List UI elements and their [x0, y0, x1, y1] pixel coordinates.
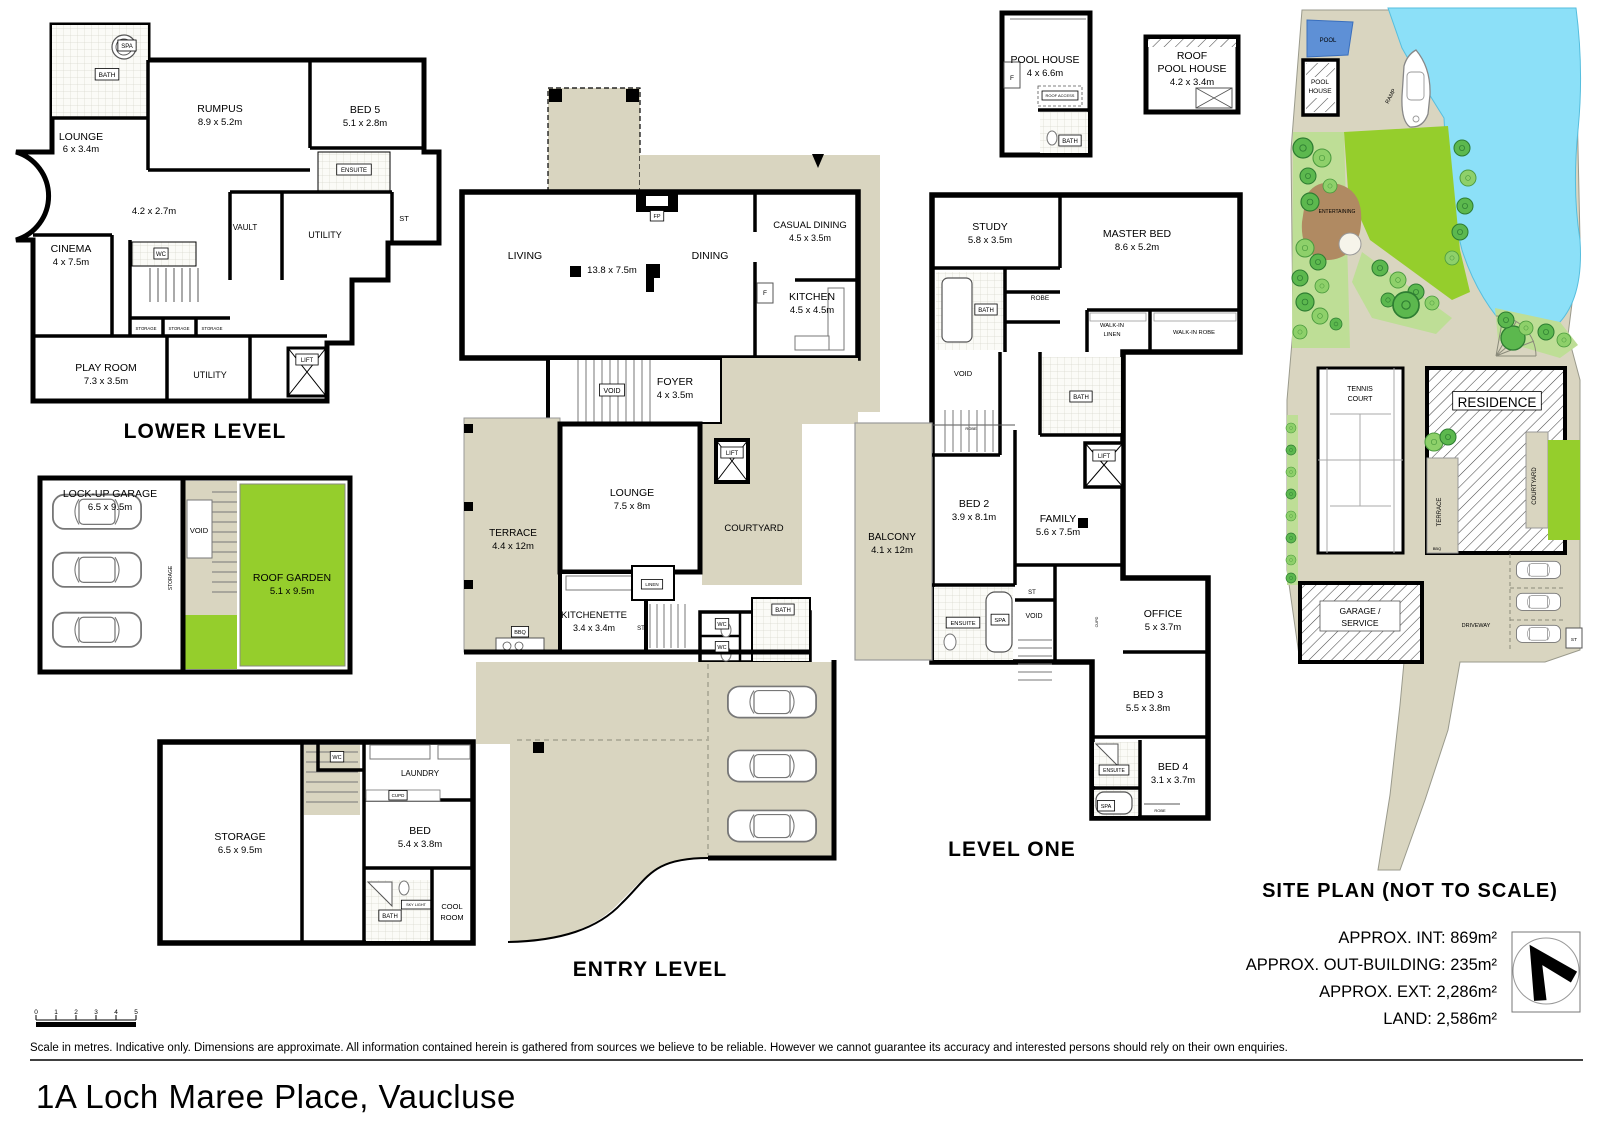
site-trees-part — [1312, 308, 1328, 324]
label-spa: SPA — [994, 618, 1005, 624]
label-4-2-x-2-7m: 4.2 x 2.7m — [132, 206, 176, 217]
level-one-plan-part — [1047, 131, 1057, 145]
label-pool: POOL — [1311, 79, 1329, 86]
entry-level-plan-part — [464, 424, 473, 433]
label-4-x-3-5m: 4 x 3.5m — [657, 390, 694, 401]
label-4: 4 — [114, 1009, 118, 1016]
label-8-6-x-5-2m: 8.6 x 5.2m — [1115, 242, 1159, 253]
site-trees-part — [1286, 423, 1296, 433]
label-4-4-x-12m: 4.4 x 12m — [492, 541, 534, 552]
label-2: 2 — [74, 1009, 78, 1016]
lower-level-title: LOWER LEVEL — [124, 420, 287, 443]
label-4-x-7-5m: 4 x 7.5m — [53, 257, 90, 268]
label-robe: ROBE — [1154, 808, 1166, 813]
label-pool-house: POOL HOUSE — [1010, 54, 1079, 66]
label-st: ST — [399, 214, 409, 223]
label-void: VOID — [1025, 613, 1042, 620]
label-casual-dining: CASUAL DINING — [773, 220, 847, 231]
site-trees-part — [1286, 573, 1296, 583]
laundry-counter — [370, 745, 430, 759]
label-robe: ROBE — [965, 426, 977, 431]
site-trees-part — [1293, 325, 1307, 339]
label-cinema: CINEMA — [51, 243, 92, 255]
label-storage: STORAGE — [214, 831, 265, 843]
label-bbq: BBQ — [1433, 546, 1441, 551]
l1-tub — [942, 278, 972, 342]
label-roof-access: ROOF ACCESS — [1046, 93, 1075, 98]
site-trees-part — [1330, 318, 1342, 330]
site-trees-part — [1300, 168, 1316, 184]
label-rumpus: RUMPUS — [197, 103, 243, 115]
label-residence: RESIDENCE — [1458, 395, 1537, 410]
site-plan-part — [1440, 429, 1456, 445]
label-pool-house: POOL HOUSE — [1157, 63, 1226, 75]
site-trees-part — [1454, 140, 1470, 156]
label-wc: WC — [156, 252, 167, 258]
label-void: VOID — [190, 526, 209, 535]
floorplan-canvas: SPABATHLOUNGE6 x 3.4mRUMPUS8.9 x 5.2mBED… — [0, 0, 1600, 1123]
scale-bar-ticks: 012345 — [34, 1009, 138, 1016]
stat-land: LAND: 2,586m² — [1383, 1010, 1497, 1028]
foyer — [548, 358, 722, 424]
label-ensuite: ENSUITE — [341, 168, 367, 174]
site-trees-part — [1445, 251, 1459, 265]
page-title: 1A Loch Maree Place, Vaucluse — [36, 1078, 516, 1115]
label-5-4-x-3-8m: 5.4 x 3.8m — [398, 839, 442, 850]
entry-level-plan-part — [728, 686, 816, 717]
site-plan-part — [1516, 561, 1560, 578]
label-tennis: TENNIS — [1347, 386, 1373, 393]
label-entertaining: ENTERTAINING — [1319, 209, 1356, 215]
entry-level-plan-part — [728, 810, 816, 841]
label-roof: ROOF — [1177, 50, 1207, 62]
label-3-9-x-8-1m: 3.9 x 8.1m — [952, 512, 996, 523]
label-5-6-x-7-5m: 5.6 x 7.5m — [1036, 527, 1080, 538]
garage-plan-part — [53, 613, 141, 647]
label-4-x-6-6m: 4 x 6.6m — [1027, 68, 1064, 79]
site-plan-part — [1306, 98, 1335, 112]
label-cupd: CUPD — [392, 793, 406, 798]
label-living: LIVING — [508, 250, 542, 262]
kitchen-bench — [795, 336, 829, 350]
entry-level-plan-part — [646, 196, 668, 206]
label-lift: LIFT — [726, 451, 739, 457]
label-4-5-x-3-5m: 4.5 x 3.5m — [789, 233, 831, 243]
label-1: 1 — [54, 1009, 58, 1016]
label-bath: BATH — [1073, 395, 1089, 401]
entry-level-plan-part — [464, 502, 473, 511]
site-trees-part — [1286, 489, 1296, 499]
site-trees-part — [1296, 293, 1314, 311]
label-cupd: CUPD — [1095, 616, 1099, 627]
site-trees-part — [1286, 445, 1296, 455]
site-trees-part — [1310, 254, 1326, 270]
label-st: ST — [637, 626, 645, 632]
site-trees-part — [1452, 224, 1468, 240]
label-bath: BATH — [978, 308, 994, 314]
label-bath: BATH — [775, 608, 791, 614]
stat-ext: APPROX. EXT: 2,286m² — [1319, 983, 1497, 1001]
label-5-1-x-2-8m: 5.1 x 2.8m — [343, 118, 387, 129]
site-plan: POOLPOOLHOUSERAMPENTERTAININGTENNISCOURT… — [1246, 8, 1582, 1028]
label-wc: WC — [717, 622, 726, 628]
site-trees-part — [1313, 149, 1331, 167]
label-family: FAMILY — [1040, 513, 1077, 525]
label-linen: LINEN — [645, 582, 658, 587]
label-courtyard: COURTYARD — [724, 523, 783, 534]
label-walk-in-robe: WALK-IN ROBE — [1173, 330, 1215, 336]
label-pool: POOL — [1320, 38, 1337, 44]
site-trees-part — [1315, 279, 1329, 293]
site-trees-part — [1498, 312, 1514, 328]
label-8-9-x-5-2m: 8.9 x 5.2m — [198, 117, 242, 128]
label-kitchen: KITCHEN — [789, 291, 835, 303]
label-walk-in: WALK-IN — [1100, 323, 1124, 329]
label-void: VOID — [954, 369, 973, 378]
label-bed-3: BED 3 — [1133, 689, 1164, 701]
label-4-2-x-3-4m: 4.2 x 3.4m — [1170, 77, 1214, 88]
label-utility: UTILITY — [193, 370, 227, 380]
label-office: OFFICE — [1144, 608, 1183, 620]
site-trees-part — [1296, 239, 1314, 257]
site-trees-part — [1372, 260, 1388, 276]
label-lift: LIFT — [301, 358, 314, 364]
site-trees-part — [1286, 511, 1296, 521]
label-3: 3 — [94, 1009, 98, 1016]
label-7-3-x-3-5m: 7.3 x 3.5m — [84, 376, 128, 387]
label-laundry: LAUNDRY — [401, 769, 440, 778]
label-driveway: DRIVEWAY — [1462, 623, 1491, 629]
label-house: HOUSE — [1308, 88, 1332, 95]
label-bbq: BBQ — [514, 630, 526, 636]
site-trees-part — [1393, 292, 1419, 318]
level-one-plan-part — [944, 634, 956, 650]
label-13-8-x-7-5m: 13.8 x 7.5m — [587, 265, 637, 276]
compass — [1508, 931, 1582, 1012]
entry-top-terrace — [548, 88, 640, 192]
label-0: 0 — [34, 1009, 38, 1016]
label-5-8-x-3-5m: 5.8 x 3.5m — [968, 235, 1012, 246]
site-trees-part — [1301, 193, 1319, 211]
label-spa: SPA — [1101, 804, 1112, 810]
disclaimer-text: Scale in metres. Indicative only. Dimens… — [30, 1042, 1288, 1054]
label-5-x-3-7m: 5 x 3.7m — [1145, 622, 1182, 633]
label-7-5-x-8m: 7.5 x 8m — [614, 501, 651, 512]
entry-level-plan-part — [626, 89, 639, 102]
walkin-shelf2 — [1154, 313, 1236, 321]
entry-stairs2 — [650, 604, 685, 648]
label-f: F — [763, 290, 767, 297]
lower-level-plan: SPABATHLOUNGE6 x 3.4mRUMPUS8.9 x 5.2mBED… — [16, 25, 439, 443]
label-wc: WC — [717, 645, 726, 651]
site-trees-part — [1286, 555, 1296, 565]
label-court: COURT — [1348, 396, 1373, 403]
label-6-x-3-4m: 6 x 3.4m — [63, 144, 100, 155]
pool-house-bath-tiles — [1040, 112, 1088, 153]
label-4-5-x-4-5m: 4.5 x 4.5m — [790, 305, 834, 316]
label-terrace: TERRACE — [1437, 498, 1443, 527]
label-robe: ROBE — [1031, 295, 1050, 302]
site-trees-part — [1519, 321, 1533, 335]
label-st: ST — [1028, 590, 1036, 596]
entry-level-plan-part — [728, 750, 816, 781]
label-lounge: LOUNGE — [59, 131, 103, 143]
label-ensuite: ENSUITE — [1103, 768, 1125, 774]
label-f: F — [1010, 75, 1014, 82]
label-roof-garden: ROOF GARDEN — [253, 572, 331, 584]
label-lounge: LOUNGE — [610, 487, 654, 499]
label-sky-light: SKY LIGHT — [406, 903, 426, 907]
label-study: STUDY — [972, 221, 1008, 233]
label-foyer: FOYER — [657, 376, 694, 388]
label-bath: BATH — [382, 914, 398, 920]
label-bed-4: BED 4 — [1158, 761, 1189, 773]
label-linen: LINEN — [1103, 332, 1120, 338]
label-cool: COOL — [441, 902, 462, 911]
label-vault: VAULT — [233, 223, 258, 232]
level-one-plan-part — [1148, 39, 1236, 47]
label-courtyard: COURTYARD — [1532, 467, 1538, 505]
entry-level-plan-part — [533, 742, 544, 753]
garage-plan: LOCK-UP GARAGE6.5 x 9.5mVOIDSTORAGEROOF … — [40, 478, 350, 672]
label-kitchenette: KITCHENETTE — [561, 610, 627, 621]
footer: 012345 Scale in metres. Indicative only.… — [30, 1009, 1583, 1115]
site-trees-part — [1323, 179, 1337, 193]
label-master-bed: MASTER BED — [1103, 228, 1172, 240]
garage-plan-part — [53, 553, 141, 587]
site-trees-part — [1286, 467, 1296, 477]
site-trees-part — [1425, 296, 1439, 310]
label-4-1-x-12m: 4.1 x 12m — [871, 545, 913, 556]
label-6-5-x-9-5m: 6.5 x 9.5m — [88, 502, 132, 513]
site-trees-part — [1286, 533, 1296, 543]
label-ensuite: ENSUITE — [950, 621, 975, 627]
label-spa: SPA — [121, 44, 133, 50]
entry-level-plan-part — [438, 745, 470, 759]
stat-int: APPROX. INT: 869m² — [1338, 929, 1497, 947]
label-wc: WC — [332, 755, 341, 761]
label-bed-2: BED 2 — [959, 498, 990, 510]
site-plan-part — [1516, 593, 1560, 610]
label-room: ROOM — [440, 913, 463, 922]
floorplan-page: SPABATHLOUNGE6 x 3.4mRUMPUS8.9 x 5.2mBED… — [0, 0, 1600, 1123]
site-plan-part — [1516, 625, 1560, 642]
label-dining: DINING — [692, 250, 729, 262]
label-lock-up-garage: LOCK-UP GARAGE — [63, 488, 157, 500]
label-6-5-x-9-5m: 6.5 x 9.5m — [218, 845, 262, 856]
site-trees-part — [1390, 272, 1406, 288]
label-utility: UTILITY — [308, 230, 342, 240]
label-lift: LIFT — [1098, 454, 1111, 460]
garden-strip — [185, 615, 237, 669]
site-trees-part — [1293, 138, 1313, 158]
site-plan-title: SITE PLAN (NOT TO SCALE) — [1262, 880, 1558, 902]
site-trees-part — [1538, 324, 1554, 340]
site-trees-part — [1460, 170, 1476, 186]
entry-level-plan-part — [399, 881, 409, 895]
scale-bar — [36, 1022, 136, 1027]
label-3-4-x-3-4m: 3.4 x 3.4m — [573, 623, 615, 633]
walkin-shelf1 — [1090, 313, 1146, 321]
label-fp: FP — [653, 214, 660, 220]
entry-level-title: ENTRY LEVEL — [573, 958, 728, 981]
stat-outbuilding: APPROX. OUT-BUILDING: 235m² — [1246, 956, 1498, 974]
label-terrace: TERRACE — [489, 528, 537, 539]
kitchenette-counter — [566, 576, 638, 590]
label-storage: STORAGE — [136, 326, 157, 331]
entry-level-plan-part — [646, 278, 654, 292]
label-5-5-x-3-8m: 5.5 x 3.8m — [1126, 703, 1170, 714]
label-bed: BED — [409, 825, 431, 837]
level-one-title: LEVEL ONE — [948, 838, 1076, 861]
entry-level-plan-part — [570, 266, 581, 277]
scale-bar-ruler — [36, 1015, 136, 1020]
entry-level-plan-part — [646, 264, 660, 278]
site-trees-part — [1292, 270, 1308, 286]
label-bath: BATH — [99, 72, 116, 79]
paver-circle — [1339, 233, 1361, 255]
label-bath: BATH — [1062, 139, 1078, 145]
label-st: ST — [1571, 637, 1577, 643]
foyer-walkway — [722, 358, 858, 424]
label-5: 5 — [134, 1009, 138, 1016]
entry-level-plan-part — [464, 580, 473, 589]
site-trees-part — [1557, 333, 1571, 347]
label-garage-: GARAGE / — [1339, 606, 1381, 616]
label-storage: STORAGE — [169, 326, 190, 331]
label-5-1-x-9-5m: 5.1 x 9.5m — [270, 586, 314, 597]
entry-level-plan-part — [549, 89, 562, 102]
label-play-room: PLAY ROOM — [75, 362, 136, 374]
label-bed-5: BED 5 — [350, 104, 381, 116]
label-3-1-x-3-7m: 3.1 x 3.7m — [1151, 775, 1195, 786]
level-one-plan: POOL HOUSE4 x 6.6mFROOF ACCESSBATHROOFPO… — [855, 13, 1240, 861]
residence-lawn — [1548, 440, 1580, 540]
label-storage: STORAGE — [168, 565, 174, 590]
label-void: VOID — [603, 388, 620, 395]
label-balcony: BALCONY — [868, 532, 916, 543]
label-service: SERVICE — [1341, 618, 1378, 628]
label-storage: STORAGE — [202, 326, 223, 331]
site-plan-part — [1306, 63, 1335, 77]
site-trees-part — [1457, 198, 1473, 214]
